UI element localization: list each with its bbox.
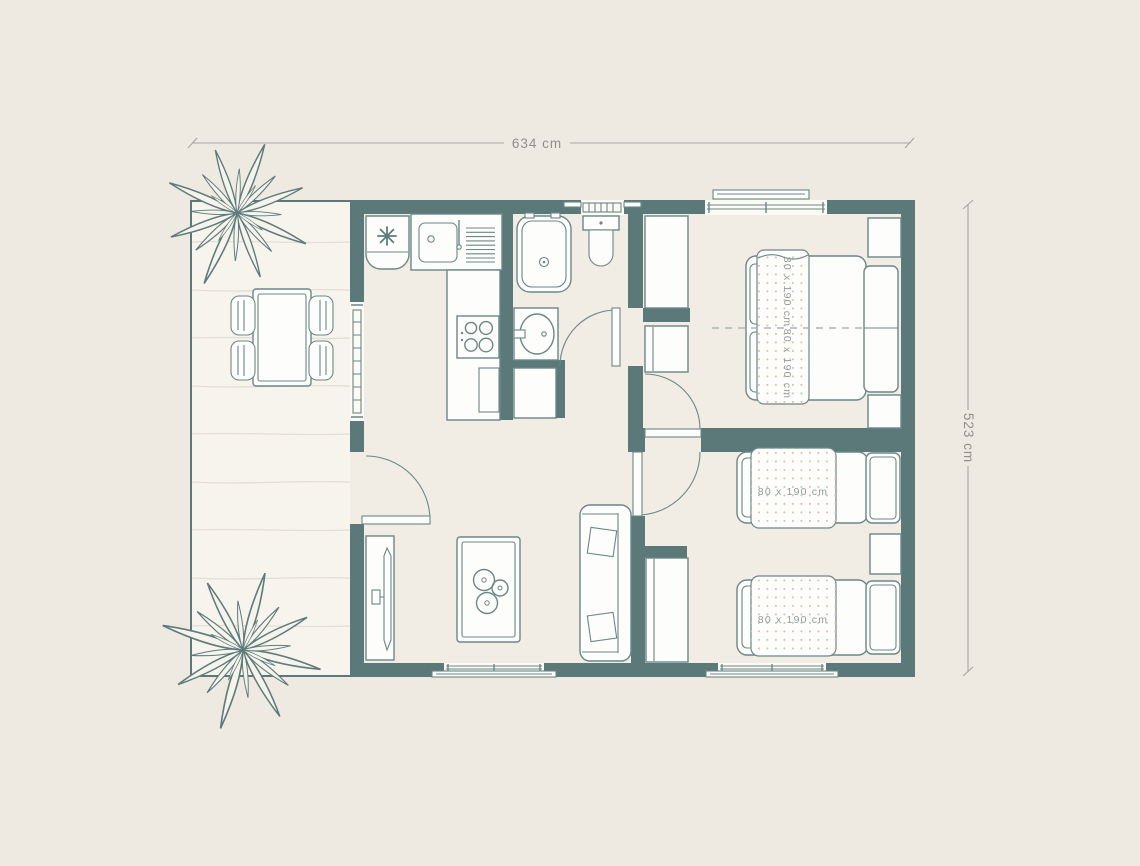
height-dimension-label: 523 cm bbox=[961, 413, 976, 463]
width-dimension-label: 634 cm bbox=[512, 136, 562, 151]
dining-chair bbox=[309, 341, 333, 380]
height-dimension: 523 cm bbox=[961, 200, 976, 676]
bathroom-door-leaf bbox=[612, 308, 620, 366]
entrance-door-leaf bbox=[362, 516, 430, 524]
floor-plan-canvas: 80 x 190 cm 80 x 190 cm 80 x 190 cm bbox=[0, 0, 1140, 866]
single-bed-bottom-label: 80 x 190 cm bbox=[758, 614, 828, 626]
shower bbox=[517, 213, 571, 292]
bathroom-cabinet bbox=[514, 368, 556, 418]
sofa bbox=[580, 505, 631, 661]
window-bedroom2-bottom bbox=[706, 663, 838, 677]
floor-plan-svg: 80 x 190 cm 80 x 190 cm 80 x 190 cm bbox=[0, 0, 1140, 866]
dining-chair bbox=[231, 341, 255, 380]
sofa-cushion bbox=[587, 527, 616, 556]
tv-icon bbox=[384, 548, 391, 650]
nightstand bbox=[870, 534, 901, 574]
tv-unit bbox=[366, 536, 394, 660]
dresser bbox=[645, 326, 688, 372]
headboard bbox=[864, 266, 898, 392]
snowflake-icon bbox=[378, 227, 396, 245]
double-mattress-top-label: 80 x 190 cm bbox=[781, 257, 793, 327]
coffee-table bbox=[457, 537, 520, 642]
headboard bbox=[866, 581, 900, 654]
nightstand bbox=[868, 218, 901, 257]
double-mattress-bottom-label: 80 x 190 cm bbox=[781, 329, 793, 399]
dining-table bbox=[253, 289, 311, 386]
bedroom2-door-leaf bbox=[633, 452, 642, 516]
width-dimension: 634 cm bbox=[188, 136, 914, 151]
nightstand bbox=[868, 395, 901, 428]
headboard bbox=[866, 453, 900, 523]
sink-basin bbox=[419, 223, 457, 262]
window-kitchen-left bbox=[350, 302, 364, 421]
bedroom1-door-leaf bbox=[645, 429, 701, 437]
window-living-bottom bbox=[432, 663, 556, 677]
stove bbox=[457, 316, 499, 358]
single-bed-top: 80 x 190 cm bbox=[737, 448, 900, 528]
kitchen-sink-counter bbox=[411, 214, 502, 270]
wardrobe bbox=[646, 558, 688, 662]
single-bed-top-label: 80 x 190 cm bbox=[758, 486, 828, 498]
basin-tap-icon bbox=[514, 330, 525, 338]
dining-chair bbox=[309, 296, 333, 335]
fridge bbox=[366, 216, 409, 269]
dining-chair bbox=[231, 296, 255, 335]
window-bedroom1-top bbox=[705, 190, 827, 215]
single-bed-bottom: 80 x 190 cm bbox=[737, 576, 900, 656]
washbasin bbox=[514, 308, 558, 360]
sofa-cushion bbox=[587, 612, 616, 641]
wardrobe bbox=[645, 216, 688, 308]
